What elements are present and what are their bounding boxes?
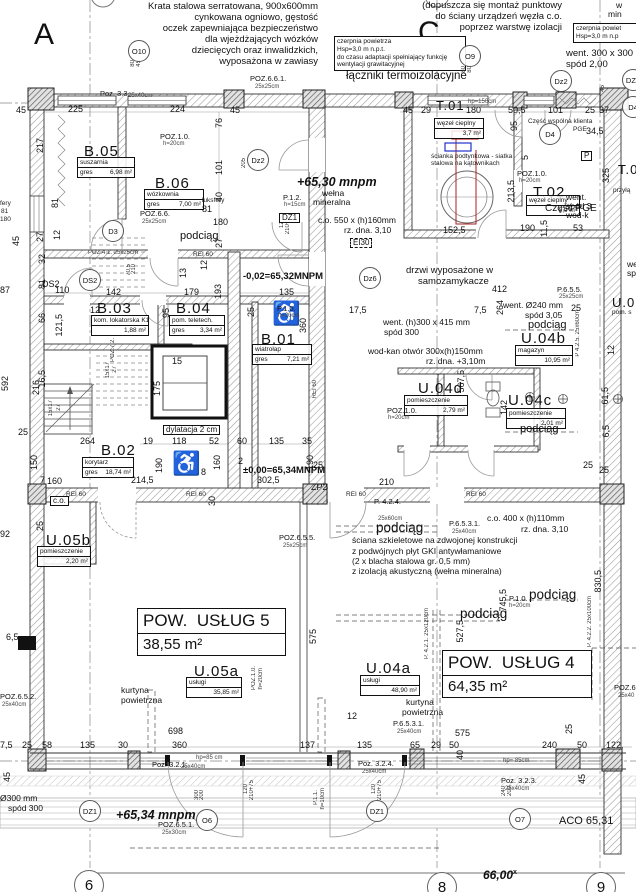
elevator-shaft bbox=[152, 346, 226, 418]
grid-span-dimension: 66,00x bbox=[483, 868, 517, 882]
annotation-label: 25x25cm bbox=[559, 294, 583, 300]
annotation-label: 6,5 bbox=[602, 425, 611, 438]
annotation-label: ściana szkieletowe na zdwojonej konstruk… bbox=[352, 536, 517, 545]
annotation-label: 29 bbox=[421, 106, 431, 115]
annotation-label: 225 bbox=[68, 105, 83, 114]
annotation-label: 264 bbox=[80, 437, 95, 446]
annotation-label: 180 bbox=[0, 217, 11, 224]
annotation-label: REI 60 bbox=[312, 380, 318, 398]
room-box-b05: suszarnia gres6,98 m² bbox=[77, 157, 135, 178]
note-line: do czasu adaptacji spełniający funkcję bbox=[337, 54, 463, 62]
annotation-label: 25 bbox=[18, 428, 28, 437]
room-id-u04c: U.04c bbox=[508, 392, 552, 409]
annotation-label: przyłą bbox=[613, 188, 630, 195]
note-line: wyposażona w zawiasy bbox=[118, 57, 318, 68]
annotation-label: 200 bbox=[507, 786, 513, 796]
annotation-label: 45 bbox=[12, 236, 21, 246]
annotation-label: 27 bbox=[56, 404, 62, 411]
annotation-label: 698 bbox=[168, 727, 183, 736]
note-line: Hsp=3,0 m n.p.t. bbox=[337, 46, 463, 54]
annotation-label: 81 bbox=[51, 198, 60, 208]
annotation-label: 137 bbox=[300, 741, 315, 750]
opening-symbol-dz1: DZ1 bbox=[79, 800, 101, 822]
annotation-label: 27 bbox=[112, 366, 118, 373]
annotation-label: P.6.5.5. bbox=[557, 286, 582, 294]
annotation-label: 830,5 bbox=[594, 570, 603, 593]
area-title: POW. USŁUG 4 bbox=[443, 651, 591, 676]
annotation-label: c.o. 400 x (h)110mm bbox=[487, 514, 564, 523]
annotation-label: 142 bbox=[500, 400, 509, 415]
annotation-label: spód 300 bbox=[384, 328, 419, 337]
room-name: pomieszczenie bbox=[405, 396, 467, 406]
annotation-label: 216 bbox=[32, 380, 41, 395]
note-line: spód 2,00 bbox=[566, 60, 633, 71]
annotation-label: 25x40 bbox=[618, 693, 634, 699]
annotation-label: 179 bbox=[184, 288, 199, 297]
annotation-label: Poz. 3.2.4. bbox=[358, 760, 394, 768]
room-area: 2,20 m² bbox=[66, 558, 88, 565]
annotation-label: 193 bbox=[214, 284, 223, 299]
room-name: węzeł cieplny bbox=[435, 119, 483, 129]
annotation-label: 25x40cm bbox=[128, 93, 152, 99]
annotation-label: REI 60 bbox=[346, 492, 366, 499]
room-area: 3,34 m² bbox=[200, 327, 222, 334]
annotation-label: 575 bbox=[309, 629, 318, 644]
annotation-label: REI 60 bbox=[186, 492, 206, 499]
annotation-label: 190 bbox=[155, 458, 164, 473]
annotation-label: min bbox=[608, 10, 622, 19]
annotation-label: 190 bbox=[520, 224, 535, 233]
annotation-label: 8 bbox=[201, 468, 206, 477]
annotation-label: 11,5 bbox=[540, 220, 549, 237]
note-laczniki: łączniki termoizolacyjne bbox=[346, 70, 467, 82]
annotation-label: EI30 bbox=[350, 238, 372, 248]
room-name: usługi bbox=[187, 678, 241, 688]
annotation-label: 25 bbox=[36, 521, 45, 531]
area-value: 38,55 m² bbox=[138, 634, 285, 655]
annotation-label: h=20cm bbox=[258, 668, 264, 690]
room-box-u04a: usługi 48,90 m² bbox=[360, 675, 420, 696]
annotation-label: 60 bbox=[237, 437, 247, 446]
annotation-label: 118 bbox=[172, 437, 186, 446]
annotation-label: 592 bbox=[1, 376, 10, 391]
annotation-label: powietrzna bbox=[402, 708, 443, 717]
section-marker-a: A bbox=[34, 18, 54, 52]
annotation-label: z podwójnych płyt GKI antywłamaniowe bbox=[352, 547, 501, 556]
annotation-label: ZP2 bbox=[311, 483, 328, 492]
annotation-label: P. 4.2.2. 25x100cm bbox=[587, 596, 593, 647]
annotation-label: POZ.1.0. bbox=[160, 133, 190, 141]
room-finish: gres bbox=[172, 327, 185, 334]
annotation-label: 101 bbox=[548, 106, 563, 115]
room-area: 48,90 m² bbox=[391, 687, 417, 694]
annotation-label: 45 bbox=[16, 106, 26, 115]
annotation-label: Poz. 3.3. bbox=[100, 90, 130, 98]
room-name: wiatrołap bbox=[253, 345, 311, 355]
annotation-label: 302,5 bbox=[257, 476, 280, 485]
room-name: suszarnia bbox=[78, 158, 134, 168]
annotation-label: 224 bbox=[170, 105, 185, 114]
note-czerpnia-right: czerpnia powiet Hsp=3,0 m n.p bbox=[573, 23, 636, 43]
annotation-label: REI 60 bbox=[66, 492, 86, 499]
annotation-label: 175 bbox=[153, 381, 162, 396]
annotation-label: 25x25cm bbox=[283, 543, 307, 549]
room-box-b02: korytarz gres18,74 m² bbox=[82, 457, 134, 478]
annotation-label: P. 4.2.4. bbox=[374, 498, 401, 506]
annotation-label: 210 bbox=[379, 478, 394, 487]
annotation-label: rz. dna. 3,10 bbox=[344, 226, 391, 235]
note-line: czerpnia powietrza bbox=[337, 38, 463, 46]
annotation-label: 25 bbox=[599, 466, 609, 475]
annotation-label: 25x40cm bbox=[452, 529, 476, 535]
annotation-label: wod-k bbox=[566, 211, 589, 220]
note-montaz: (dopuszcza się montaż punktowy do ściany… bbox=[398, 1, 562, 34]
annotation-label: 45 bbox=[600, 85, 606, 92]
annotation-label: 210+75 bbox=[249, 780, 255, 800]
annotation-label: P.1.2. bbox=[283, 194, 302, 202]
annotation-label: h=10cm bbox=[320, 788, 326, 810]
annotation-label: 37 bbox=[599, 106, 609, 115]
annotation-label: POZ.1.0. bbox=[517, 170, 547, 178]
annotation-label: 7,5 bbox=[0, 741, 13, 750]
room-name: korytarz bbox=[83, 458, 133, 468]
annotation-label: podciąg bbox=[376, 521, 423, 535]
annotation-label: P.1.1. bbox=[313, 790, 319, 805]
annotation-label: (2 x blacha stalowa gr. 0,5 mm) bbox=[352, 557, 470, 566]
note-line: poprzez warstwę izolacji bbox=[398, 23, 562, 34]
annotation-label: podciąg bbox=[529, 588, 576, 602]
annotation-label: 25 bbox=[22, 741, 32, 750]
annotation-label: h=15cm bbox=[284, 202, 306, 208]
annotation-label: 210 bbox=[131, 264, 137, 274]
annotation-label: spód bbox=[627, 269, 636, 278]
annotation-label: 135 bbox=[269, 437, 284, 446]
annotation-label: Ø300 mm bbox=[0, 794, 37, 803]
room-box-b06: wózkownia gres7,00 m² bbox=[144, 189, 204, 210]
opening-symbol-dz1: DZ1 bbox=[366, 800, 388, 822]
note-line: samozamykacze bbox=[406, 277, 493, 288]
opening-symbol-o6: O6 bbox=[196, 809, 218, 831]
annotation-label: 150 bbox=[30, 455, 39, 470]
annotation-label: 25 bbox=[247, 307, 256, 317]
room-area: 2,79 m² bbox=[443, 407, 465, 414]
annotation-label: 65 bbox=[410, 741, 420, 750]
heating-tank bbox=[441, 171, 493, 223]
room-finish: gres bbox=[147, 201, 160, 208]
annotation-label: h=20cm bbox=[509, 603, 531, 609]
annotation-label: 50 bbox=[449, 741, 459, 750]
annotation-label: 40 bbox=[456, 750, 465, 760]
annotation-label: P.6.5.3.1. bbox=[393, 720, 424, 728]
annotation-label: pom. s bbox=[612, 310, 632, 317]
room-box-u05a: usługi 35,85 m² bbox=[186, 677, 242, 698]
annotation-label: P bbox=[581, 151, 592, 161]
annotation-label: went. (h)300 x 415 mm bbox=[383, 318, 470, 327]
annotation-label: 160 bbox=[213, 455, 222, 470]
annotation-label: 135 bbox=[357, 741, 372, 750]
annotation-label: 5 bbox=[521, 155, 530, 160]
annotation-label: podciąg bbox=[460, 607, 507, 621]
annotation-label: 45 bbox=[578, 774, 587, 784]
room-box-t01: węzeł cieplny 3,7 m² bbox=[434, 118, 484, 139]
opening-symbol-o7: O7 bbox=[509, 808, 531, 830]
annotation-label: 7 bbox=[40, 476, 45, 485]
annotation-label: 214,5 bbox=[131, 476, 154, 485]
annotation-label: ACO 65,31 bbox=[559, 816, 613, 827]
annotation-label: 567,5 bbox=[457, 370, 466, 393]
annotation-label: 50 bbox=[577, 741, 587, 750]
annotation-label: 25x25cm bbox=[142, 219, 166, 225]
area-value: 64,35 m² bbox=[443, 676, 591, 697]
annotation-label: 7,5 bbox=[474, 306, 487, 315]
room-area: 7,00 m² bbox=[179, 201, 201, 208]
annotation-label: POZ.7.2. bbox=[110, 338, 116, 362]
annotation-label: 45 bbox=[403, 106, 413, 115]
annotation-label: 122, bbox=[606, 741, 624, 750]
annotation-label: 325 bbox=[602, 168, 611, 183]
annotation-label: Poz. 3.2.3. bbox=[501, 777, 537, 785]
annotation-label: P 4.2.5. 25x60cm bbox=[575, 310, 581, 357]
annotation-label: podciąg bbox=[520, 424, 559, 435]
room-area: 10,95 m² bbox=[544, 357, 570, 364]
annotation-label: h=20cm bbox=[388, 415, 410, 421]
room-area: 3,7 m² bbox=[463, 130, 481, 137]
annotation-label: 360 bbox=[299, 318, 308, 333]
grid-bubble-6: 6 bbox=[74, 870, 104, 892]
annotation-label: 58 bbox=[42, 741, 52, 750]
annotation-label: 25 bbox=[565, 724, 574, 734]
note-line: Hsp=3,0 m n.p bbox=[576, 33, 636, 41]
room-area: 1,88 m² bbox=[124, 327, 146, 334]
annotation-label: 15x17 bbox=[48, 400, 54, 416]
room-box-b01: wiatrołap gres7,21 m² bbox=[252, 344, 312, 365]
annotation-label: h=20cm bbox=[278, 313, 300, 319]
opening-symbol-dz2: Dz2 bbox=[247, 149, 269, 171]
area-title: POW. USŁUG 5 bbox=[138, 609, 285, 634]
annotation-label: DZ1 bbox=[279, 213, 300, 223]
opening-symbol-o10: O10 bbox=[128, 40, 150, 62]
annotation-label: 92 bbox=[0, 530, 10, 539]
floor-plan-drawing: A C Krata stalowa serratowana, 900x600mm… bbox=[0, 0, 636, 892]
room-box-u04b: magazyn 10,95 m² bbox=[515, 345, 573, 366]
room-name: pom. teletech. bbox=[170, 316, 224, 326]
annotation-label: 13 bbox=[179, 268, 188, 278]
annotation-label: went. Ø240 mm bbox=[503, 301, 563, 310]
annotation-label: 30 bbox=[208, 496, 217, 506]
annotation-label: 32 bbox=[38, 254, 47, 264]
annotation-label: POZ.1.0. bbox=[251, 666, 257, 690]
annotation-label: POZ.6.5.5. bbox=[279, 534, 315, 542]
annotation-label: REI 60 bbox=[466, 492, 486, 499]
annotation-label: -0,02=65,32MNPM bbox=[243, 272, 323, 282]
annotation-label: stalowa na kątownikach bbox=[431, 161, 500, 168]
annotation-label: 87 bbox=[0, 286, 10, 295]
room-area: 35,85 m² bbox=[213, 689, 239, 696]
insulation-zigzag bbox=[58, 115, 65, 206]
annotation-label: PGE bbox=[573, 127, 587, 134]
annotation-label: P.1.0. bbox=[277, 305, 296, 313]
annotation-label: rz. dna. 3,10 bbox=[521, 525, 568, 534]
annotation-label: 66 bbox=[38, 313, 47, 323]
annotation-label: 360 bbox=[172, 741, 187, 750]
annotation-label: podciąg bbox=[180, 231, 219, 242]
annotation-label: 240 bbox=[542, 741, 557, 750]
annotation-label: 95 bbox=[510, 121, 519, 131]
annotation-label: spód 300 bbox=[8, 804, 43, 813]
note-went-topright: went. 300 x 300 spód 2,00 bbox=[566, 49, 633, 71]
annotation-label: 217 bbox=[36, 138, 45, 153]
annotation-label: kurtyna bbox=[406, 698, 434, 707]
annotation-label: 527,5 bbox=[456, 620, 465, 643]
annotation-label: POZ.4.1. 25x25cm bbox=[88, 250, 138, 256]
annotation-label: 34,5 bbox=[586, 127, 604, 136]
annotation-label: 135 bbox=[80, 741, 95, 750]
annotation-label: 25 bbox=[583, 461, 593, 470]
annotation-label: 53 bbox=[573, 224, 583, 233]
annotation-label: h=20cm bbox=[519, 178, 541, 184]
room-area: 18,74 m² bbox=[105, 469, 131, 476]
annotation-label: P.6.5.3.1. bbox=[449, 520, 480, 528]
annotation-label: hp=85 cm bbox=[196, 755, 223, 761]
annotation-label: kurtyna bbox=[121, 686, 149, 695]
opening-symbol-d3: D3 bbox=[102, 220, 124, 242]
annotation-label: Część wspólna klienta bbox=[528, 119, 592, 126]
annotation-label: POZ.6. bbox=[614, 684, 636, 692]
room-area: 6,98 m² bbox=[110, 169, 132, 176]
room-name: wózkownia bbox=[145, 190, 203, 200]
annotation-label: 180 bbox=[213, 218, 228, 227]
wheelchair-icon: ♿ bbox=[172, 450, 201, 477]
annotation-label: 12 bbox=[347, 712, 357, 721]
room-finish: gres bbox=[85, 469, 98, 476]
room-name: pomieszczenie bbox=[507, 409, 565, 419]
annotation-label: 101 bbox=[215, 160, 224, 175]
annotation-label: 52 bbox=[209, 437, 219, 446]
opening-symbol-dz6: Dz6 bbox=[359, 267, 381, 289]
room-name: pomieszczenie bbox=[38, 547, 90, 557]
annotation-label: 35 bbox=[302, 437, 312, 446]
note-line: wentylacji grawitacyjnej bbox=[337, 61, 463, 69]
annotation-label: 25x40cm bbox=[181, 764, 205, 770]
annotation-label: 15 bbox=[172, 357, 182, 366]
annotation-label: 210+75 bbox=[377, 780, 383, 800]
annotation-label: 29 bbox=[431, 741, 441, 750]
annotation-label: dylatacja 2 cm bbox=[163, 425, 220, 435]
annotation-label: POZ.6.6.1. bbox=[250, 75, 286, 83]
annotation-label: 27 bbox=[36, 232, 45, 242]
annotation-label: P.1.0. bbox=[509, 595, 528, 603]
room-box-b03: kom. lokatorska K1 1,88 m² bbox=[91, 315, 149, 336]
grid-span-suffix: x bbox=[513, 869, 517, 876]
note-czerpnia: czerpnia powietrza Hsp=3,0 m n.p.t. do c… bbox=[334, 36, 466, 71]
annotation-label: z izolacją akustyczną (wełna mineralna) bbox=[352, 567, 502, 576]
annotation-label: +65,30 mnpm bbox=[297, 176, 377, 189]
annotation-label: POZ.1.0. bbox=[387, 407, 417, 415]
annotation-label: ±0,00=65,34MNPM bbox=[243, 466, 325, 476]
annotation-label: 213,5 bbox=[507, 180, 516, 203]
annotation-label: 25x40cm bbox=[397, 729, 421, 735]
annotation-label: wod-kan otwór 300x(h)150mm bbox=[368, 347, 483, 356]
annotation-label: U.0 bbox=[612, 296, 635, 309]
note-samozamykacze: drzwi wyposażone w samozamykacze bbox=[406, 266, 493, 288]
annotation-label: fery bbox=[0, 201, 11, 208]
annotation-label: T.01 bbox=[436, 99, 465, 112]
annotation-label: 50,5 bbox=[508, 106, 526, 115]
room-name: kom. lokatorska K1 bbox=[92, 316, 148, 326]
annotation-label: 200 bbox=[199, 790, 205, 800]
annotation-label: 135 bbox=[279, 288, 294, 297]
note-line: czerpnia powiet bbox=[576, 25, 636, 33]
opening-symbol-dz2: Dz2 bbox=[550, 70, 572, 92]
annotation-label: h=20cm bbox=[163, 141, 185, 147]
annotation-label: 45 bbox=[3, 772, 12, 782]
grid-span-value: 66,00 bbox=[483, 868, 513, 882]
annotation-label: P. 4.2.1. 25x120cm bbox=[424, 608, 430, 659]
annotation-label: POZ.6.5.2. bbox=[0, 693, 36, 701]
note-krata: Krata stalowa serratowana, 900x600mm cyn… bbox=[118, 2, 318, 68]
opening-symbol-ds2: DS2 bbox=[79, 269, 101, 291]
annotation-label: 80 bbox=[467, 66, 473, 73]
annotation-label: 17,5 bbox=[349, 306, 367, 315]
annotation-label: 25x40cm bbox=[362, 769, 386, 775]
annotation-label: POZ.6.6. bbox=[140, 210, 170, 218]
annotation-label: 76 bbox=[215, 118, 224, 128]
room-name: magazyn bbox=[516, 346, 572, 356]
annotation-label: 40 bbox=[215, 192, 224, 202]
annotation-label: rz. dna. +3,10m bbox=[426, 357, 485, 366]
area-box-uslug4: POW. USŁUG 4 64,35 m² bbox=[442, 650, 592, 698]
annotation-label: 61,5 bbox=[601, 387, 610, 405]
annotation-label: 6,5 bbox=[6, 633, 19, 642]
annotation-label: 412 bbox=[492, 285, 507, 294]
annotation-label: 180 bbox=[466, 106, 481, 115]
room-finish: gres bbox=[80, 169, 93, 176]
annotation-label: hp= 85cm bbox=[503, 758, 530, 764]
annotation-label: c.o. 550 x (h)160mm bbox=[318, 216, 396, 225]
annotation-label: 160 bbox=[47, 477, 62, 486]
room-name: usługi bbox=[361, 676, 419, 686]
annotation-label: 121,5 bbox=[55, 314, 64, 337]
annotation-label: 81 bbox=[1, 209, 8, 216]
annotation-label: REI 60 bbox=[193, 252, 213, 259]
annotation-label: 25x25cm bbox=[255, 84, 279, 90]
annotation-label: 95 bbox=[162, 308, 171, 318]
annotation-label: 25x30cm bbox=[162, 830, 186, 836]
annotation-label: 45 bbox=[230, 106, 240, 115]
annotation-label: powietrzna bbox=[121, 696, 162, 705]
annotation-label: 15x17 bbox=[105, 362, 111, 378]
annotation-label: podciąg bbox=[528, 320, 567, 331]
area-box-uslug5: POW. USŁUG 5 38,55 m² bbox=[137, 608, 286, 656]
annotation-label: 12 bbox=[200, 260, 209, 270]
equipment-blue-box bbox=[445, 143, 471, 151]
annotation-label: mineralna bbox=[313, 198, 350, 207]
room-finish: gres bbox=[255, 356, 268, 363]
annotation-label: DS2 bbox=[42, 280, 60, 289]
opening-symbol-d4: D4 bbox=[539, 123, 561, 145]
annotation-label: 12 bbox=[607, 345, 616, 355]
annotation-label: 152,5 bbox=[443, 226, 466, 235]
opening-symbol-o9: O9 bbox=[459, 45, 481, 67]
annotation-label: 25 bbox=[585, 106, 595, 115]
room-box-u05b: pomieszczenie 2,20 m² bbox=[37, 546, 91, 567]
annotation-label: 575 bbox=[455, 729, 470, 738]
annotation-label: 12 bbox=[90, 306, 100, 315]
room-area: 7,21 m² bbox=[287, 356, 309, 363]
annotation-label: 12 bbox=[53, 230, 62, 240]
heating-pipe-red bbox=[456, 139, 476, 224]
annotation-label: T.0 bbox=[618, 163, 636, 176]
